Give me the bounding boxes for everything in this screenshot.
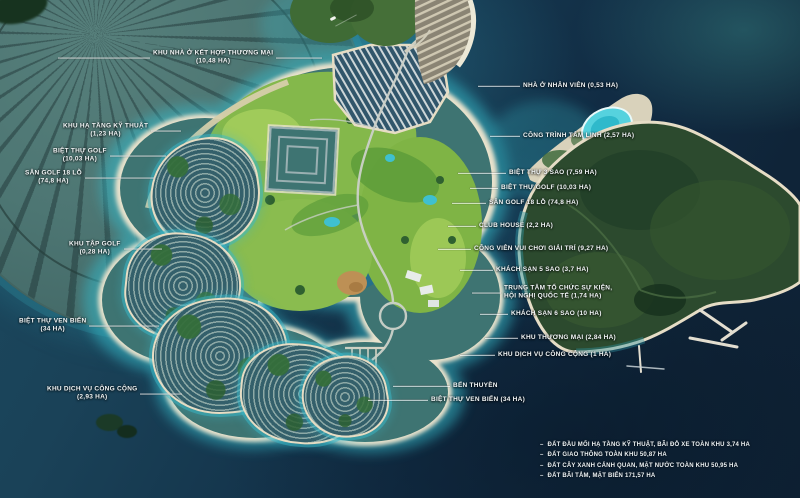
map-label-text: BIỆT THỰ GOLF (10,03 HA) [498, 184, 594, 192]
map-label-text: BIỆT THỰ VEN BIỂN (34 HA) [428, 396, 528, 404]
legend-bullet: – [540, 450, 544, 460]
leader-line [452, 203, 486, 204]
legend-row: – ĐẤT BÃI TẮM, MẶT BIỂN 171,57 HA [540, 471, 750, 481]
legend-item: ĐẤT BÃI TẮM, MẶT BIỂN 171,57 HA [548, 471, 656, 481]
map-label-biet-thu-ven-bien-right: BIỆT THỰ VEN BIỂN (34 HA) [368, 396, 528, 404]
map-label-trung-tam-su-kien: TRUNG TÂM TỔ CHỨC SỰ KIỆN,HỘI NGHỊ QUỐC … [472, 285, 615, 302]
legend-bullet: – [540, 461, 544, 471]
legend-row: – ĐẤT ĐẦU MỐI HẠ TẦNG KỸ THUẬT, BÃI ĐỖ X… [540, 440, 750, 450]
leader-line [490, 136, 520, 137]
leader-line [89, 326, 159, 327]
legend-bullet: – [540, 440, 544, 450]
leader-line [368, 400, 428, 401]
leader-line [478, 86, 520, 87]
map-label-text: BIỆT THỰ VEN BIỂN(34 HA) [16, 318, 89, 335]
map-label-text: KHÁCH SẠN 5 SAO (3,7 HA) [493, 266, 592, 274]
leader-line [485, 338, 518, 339]
map-label-ben-thuyen: BẾN THUYỀN [393, 382, 501, 390]
leader-line [438, 249, 471, 250]
map-label-san-golf-18-lo-right: SÂN GOLF 18 LỖ (74,8 HA) [452, 199, 581, 207]
leader-line [151, 131, 181, 132]
map-label-khach-san-5-sao: KHÁCH SẠN 5 SAO (3,7 HA) [460, 266, 592, 274]
map-label-text: KHU TẬP GOLF(0,28 HA) [66, 241, 124, 258]
map-label-text: CÔNG TRÌNH TÂM LINH (2,57 HA) [520, 132, 637, 140]
map-label-biet-thu-3-sao: BIỆT THỰ 3 SAO (7,59 HA) [458, 169, 600, 177]
leader-line [58, 58, 150, 59]
map-label-nha-o-nhan-vien: NHÀ Ở NHÂN VIÊN (0,53 HA) [478, 82, 621, 90]
leader-line [458, 173, 506, 174]
legend-item: ĐẤT CÂY XANH CẢNH QUAN, MẶT NƯỚC TOÀN KH… [548, 461, 739, 471]
map-label-text: TRUNG TÂM TỔ CHỨC SỰ KIỆN,HỘI NGHỊ QUỐC … [501, 285, 615, 302]
map-label-khach-san-6-sao: KHÁCH SẠN 6 SAO (10 HA) [480, 310, 605, 318]
legend-bullet: – [540, 471, 544, 481]
map-label-text: KHU DỊCH VỤ CÔNG CỘNG(2,93 HA) [44, 386, 140, 403]
map-label-text: BIỆT THỰ GOLF(10,03 HA) [50, 148, 110, 165]
leader-line [124, 249, 162, 250]
leader-line [393, 386, 450, 387]
leader-line [85, 178, 155, 179]
map-label-text: KHU HẠ TẦNG KỸ THUẬT(1,23 HA) [60, 123, 151, 140]
labels-layer: KHU NHÀ Ở KẾT HỢP THƯƠNG MẠI(10,48 HA)KH… [0, 0, 800, 498]
map-label-khu-dich-vu-cong-cong-right: KHU DỊCH VỤ CÔNG CỘNG (1 HA) [460, 351, 614, 359]
map-label-text: SÂN GOLF 18 LỖ (74,8 HA) [486, 199, 581, 207]
leader-line [472, 293, 501, 294]
map-label-khu-thuong-mai: KHU THƯƠNG MẠI (2,84 HA) [485, 334, 619, 342]
map-label-khu-nha-o-ket-hop-thuong-mai: KHU NHÀ Ở KẾT HỢP THƯƠNG MẠI(10,48 HA) [58, 50, 322, 67]
map-label-khu-ha-tang-ky-thuat: KHU HẠ TẦNG KỸ THUẬT(1,23 HA) [60, 123, 181, 140]
legend-item: ĐẤT GIAO THÔNG TOÀN KHU 50,87 HA [548, 450, 667, 460]
leader-line [470, 188, 498, 189]
leader-line [460, 270, 493, 271]
leader-line [276, 58, 322, 59]
legend-item: ĐẤT ĐẦU MỐI HẠ TẦNG KỸ THUẬT, BÃI ĐỖ XE … [548, 440, 750, 450]
leader-line [480, 314, 508, 315]
master-plan-map: KHU NHÀ Ở KẾT HỢP THƯƠNG MẠI(10,48 HA)KH… [0, 0, 800, 498]
map-label-club-house: CLUB HOUSE (2,2 HA) [448, 222, 556, 230]
leader-line [460, 355, 495, 356]
map-label-cong-trinh-tam-linh: CÔNG TRÌNH TÂM LINH (2,57 HA) [490, 132, 637, 140]
map-label-text: KHU THƯƠNG MẠI (2,84 HA) [518, 334, 619, 342]
map-label-biet-thu-golf-right: BIỆT THỰ GOLF (10,03 HA) [470, 184, 594, 192]
map-label-khu-tap-golf: KHU TẬP GOLF(0,28 HA) [66, 241, 162, 258]
legend: – ĐẤT ĐẦU MỐI HẠ TẦNG KỸ THUẬT, BÃI ĐỖ X… [540, 440, 750, 482]
legend-row: – ĐẤT GIAO THÔNG TOÀN KHU 50,87 HA [540, 450, 750, 460]
legend-row: – ĐẤT CÂY XANH CẢNH QUAN, MẶT NƯỚC TOÀN … [540, 461, 750, 471]
map-label-text: SÂN GOLF 18 LỖ(74,8 HA) [22, 170, 85, 187]
map-label-text: CÔNG VIÊN VUI CHƠI GIẢI TRÍ (9,27 HA) [471, 245, 611, 253]
map-label-text: KHU NHÀ Ở KẾT HỢP THƯƠNG MẠI(10,48 HA) [150, 50, 276, 67]
map-label-text: BẾN THUYỀN [450, 382, 501, 390]
leader-line [448, 226, 476, 227]
map-label-text: BIỆT THỰ 3 SAO (7,59 HA) [506, 169, 600, 177]
leader-line [110, 156, 166, 157]
map-label-text: NHÀ Ở NHÂN VIÊN (0,53 HA) [520, 82, 621, 90]
map-label-text: KHU DỊCH VỤ CÔNG CỘNG (1 HA) [495, 351, 614, 359]
map-label-san-golf-18-lo-left: SÂN GOLF 18 LỖ(74,8 HA) [22, 170, 155, 187]
map-label-biet-thu-ven-bien-left: BIỆT THỰ VEN BIỂN(34 HA) [16, 318, 159, 335]
map-label-text: KHÁCH SẠN 6 SAO (10 HA) [508, 310, 605, 318]
map-label-text: CLUB HOUSE (2,2 HA) [476, 222, 556, 230]
map-label-cong-vien-vui-choi-giai-tri: CÔNG VIÊN VUI CHƠI GIẢI TRÍ (9,27 HA) [438, 245, 611, 253]
leader-line [140, 394, 182, 395]
map-label-biet-thu-golf-left: BIỆT THỰ GOLF(10,03 HA) [50, 148, 166, 165]
map-label-khu-dich-vu-cong-cong-left: KHU DỊCH VỤ CÔNG CỘNG(2,93 HA) [44, 386, 182, 403]
